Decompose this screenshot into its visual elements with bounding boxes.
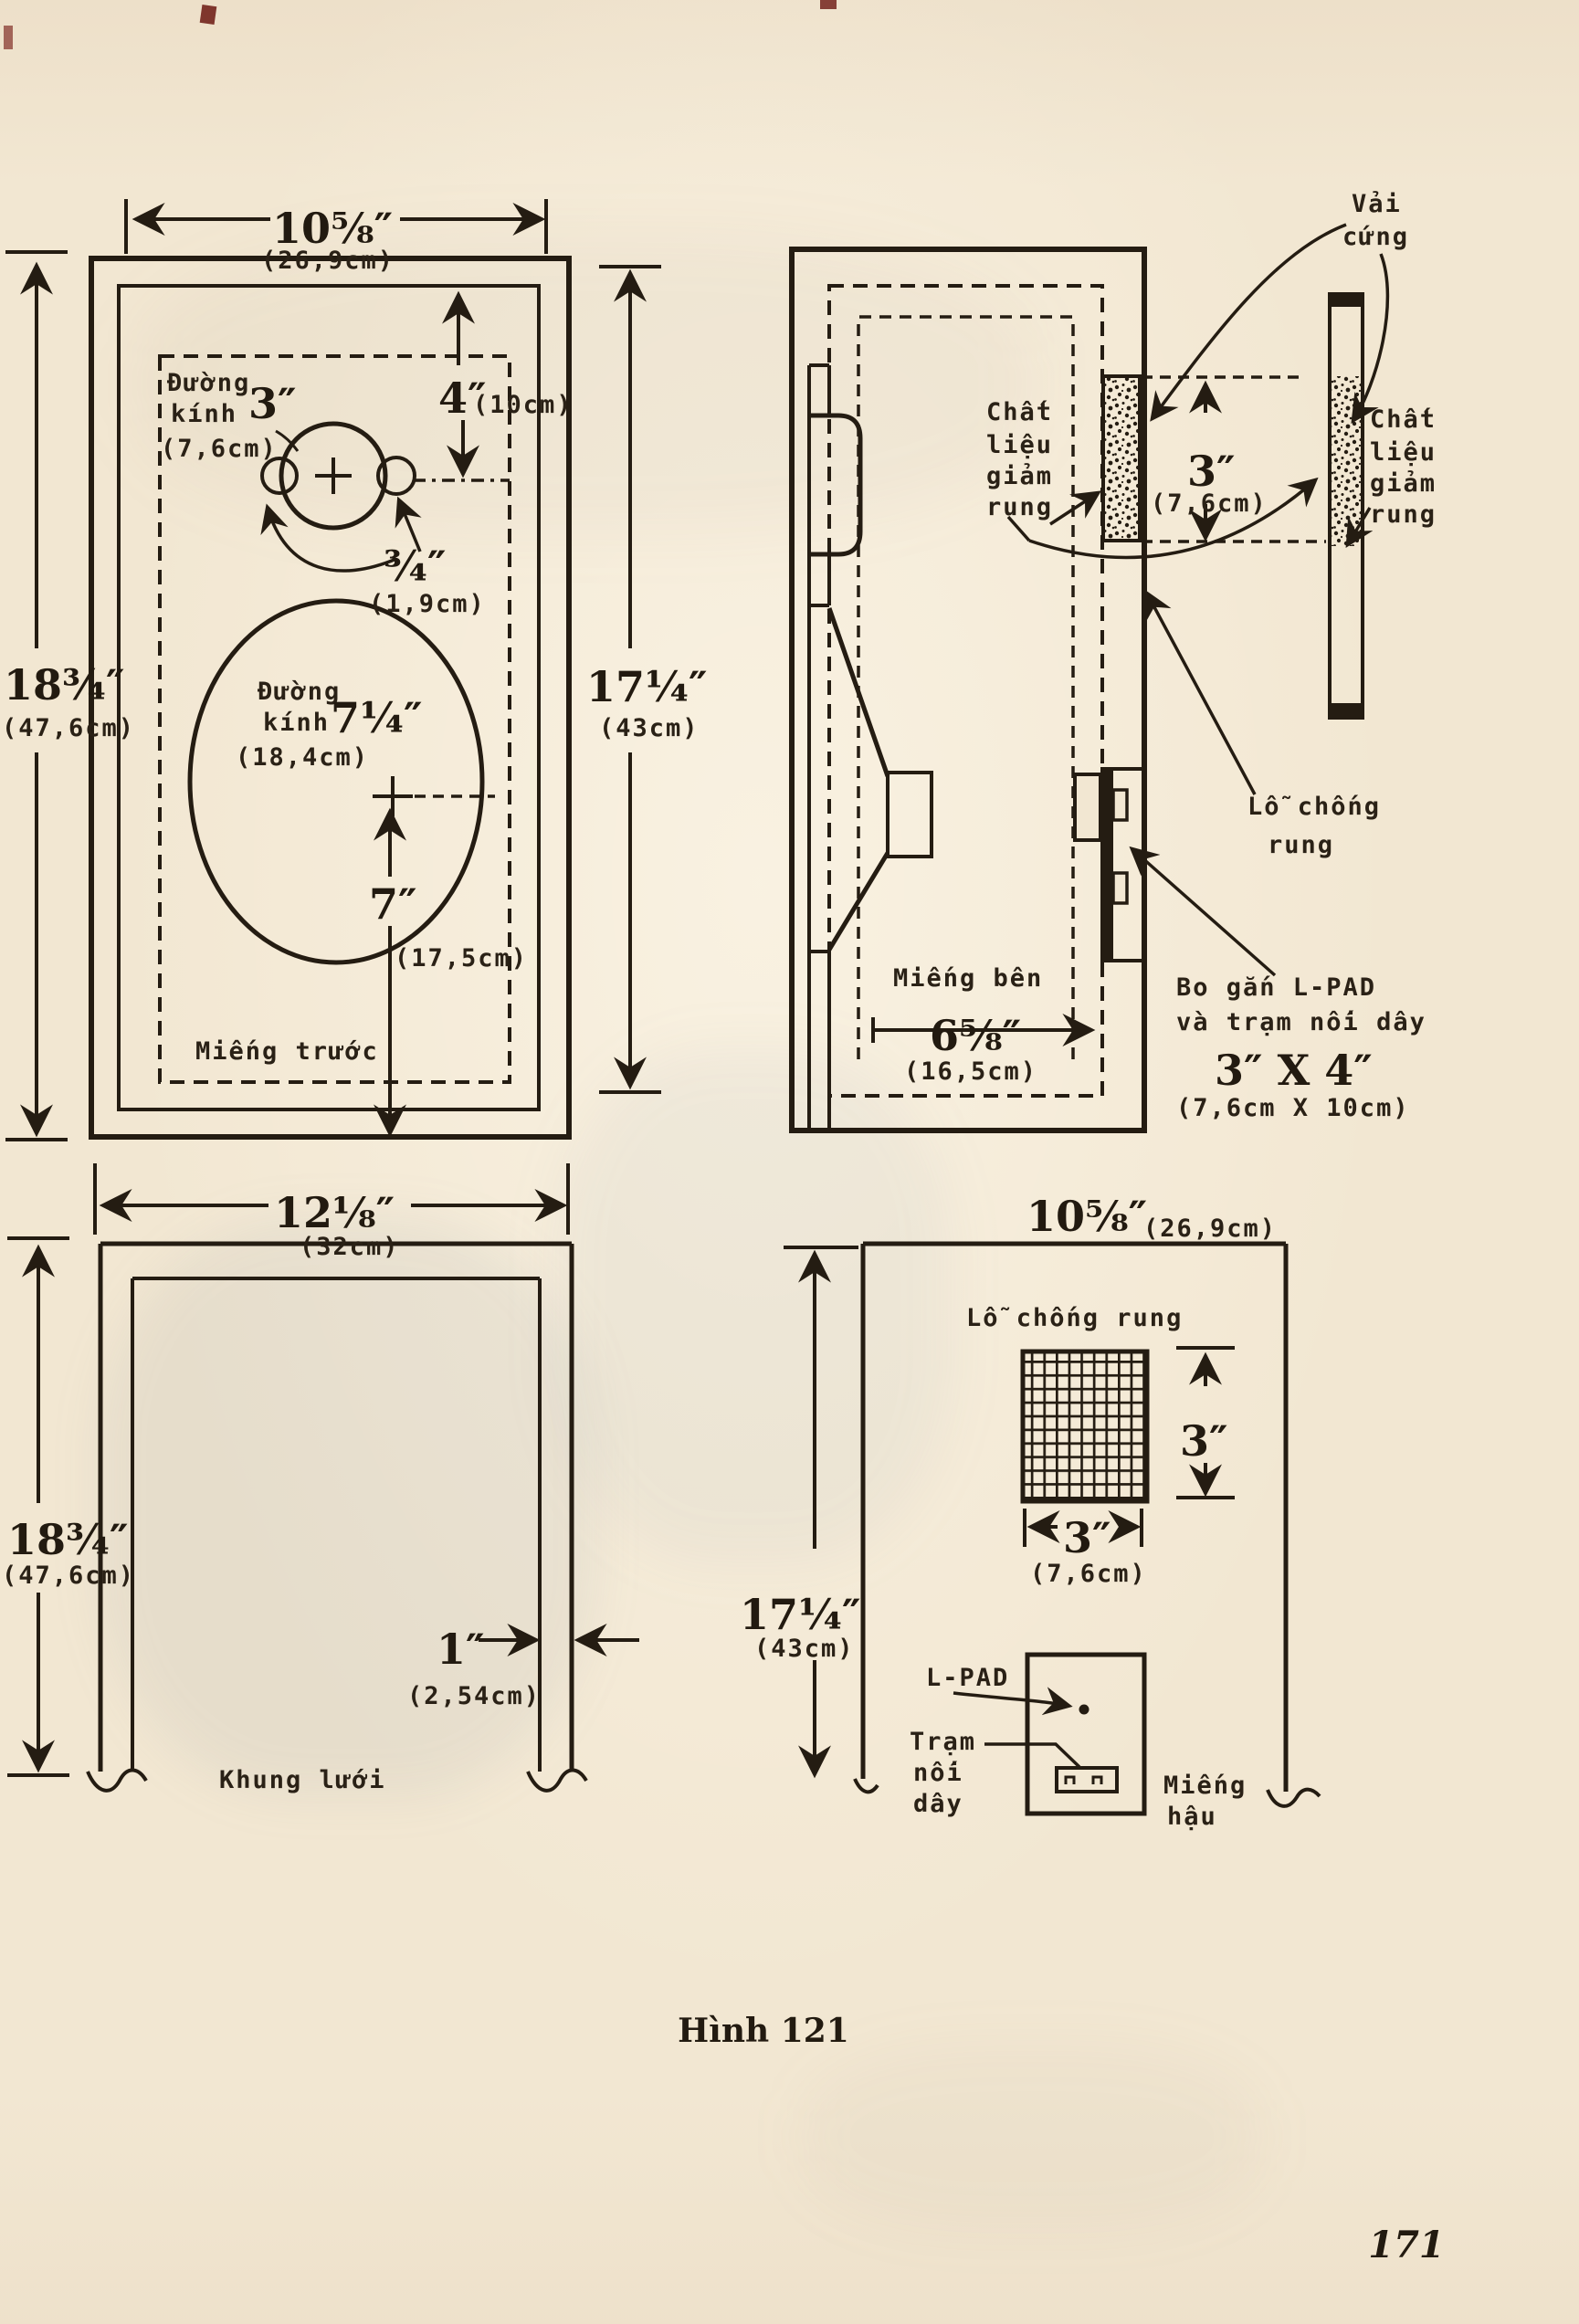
tweeter-dia-inches: 3″	[248, 379, 297, 428]
terminal-word3: dây	[913, 1790, 963, 1818]
terminal-contacts	[1066, 1777, 1101, 1784]
back-break-right	[1268, 1790, 1320, 1806]
lpad-board	[1100, 769, 1113, 961]
damping-r-word2: liệu	[1370, 438, 1437, 467]
thickness-cm: (7,6cm)	[1151, 489, 1268, 518]
tweeter-dia-word2: kính	[171, 400, 237, 428]
lpad-panel-outline	[1027, 1655, 1144, 1814]
damping-detail-labels: Vải cứng Chất liệu giảm rung 3″ (7,6cm)	[1151, 190, 1437, 529]
thickness-inches: 3″	[1187, 447, 1236, 496]
vibration-hole-pointer	[1147, 594, 1255, 794]
offset-arrow-left	[268, 508, 396, 571]
hole-width-inches: 3″	[1063, 1513, 1111, 1562]
tweeter-back-profile	[809, 415, 860, 554]
side-panel-inner-dashed	[858, 317, 1073, 1059]
depth-cm: (16,5cm)	[904, 1057, 1037, 1086]
tweeter-dia-word1: Đường	[167, 369, 250, 397]
tweeter-dia-cm: (7,6cm)	[161, 435, 278, 463]
terminal-station-side	[1075, 774, 1100, 840]
damping-strip-in-box	[1103, 376, 1140, 541]
back-name-word2: hậu	[1167, 1803, 1217, 1831]
side-panel-name: Miếng bên	[893, 964, 1043, 993]
back-height-inches: 17¼″	[740, 1590, 861, 1639]
strip-top-cap	[1330, 294, 1363, 307]
back-height-cm: (43cm)	[754, 1635, 855, 1663]
damping-word2: liệu	[986, 431, 1053, 459]
bar-cm: (2,54cm)	[407, 1682, 541, 1710]
front-height-inches: 18¾″	[4, 660, 125, 710]
cloth-word2: cứng	[1342, 223, 1409, 251]
lpad-note-pointer	[1132, 849, 1275, 975]
grille-break-right	[528, 1770, 586, 1790]
woofer-bottom-cm: (17,5cm)	[395, 944, 528, 973]
cutout-height-cm: (43cm)	[599, 714, 700, 742]
woofer-dia-word2: kính	[263, 709, 330, 737]
front-height-cm: (47,6cm)	[2, 714, 135, 742]
tweeter-offset-inches: ¾″	[384, 542, 447, 591]
grille-height-inches: 18¾″	[7, 1515, 129, 1564]
back-name-word1: Miếng	[1163, 1772, 1247, 1800]
lpad-shaft-dot	[1079, 1705, 1090, 1715]
lpad-note-size: 3″ X 4″	[1215, 1046, 1373, 1095]
vibration-hole-word2: rung	[1268, 831, 1334, 859]
terminal-word2: nối	[913, 1759, 963, 1787]
figure-caption: Hình 121	[678, 2012, 849, 2050]
grille-width-inches: 12⅛″	[274, 1188, 395, 1237]
vibration-hole-mesh	[1023, 1351, 1147, 1501]
strip-bottom-cap	[1330, 703, 1363, 718]
vibration-hole-word1: Lỗ chống	[1247, 793, 1381, 821]
damping-word4: rung	[986, 493, 1053, 521]
page-number: 171	[1368, 2224, 1445, 2266]
woofer-dia-inches: 7¼″	[331, 693, 423, 742]
damping-word3: giảm	[986, 462, 1053, 490]
tweeter-offset-cm: (1,9cm)	[369, 590, 486, 618]
strip-stipple	[1332, 376, 1361, 546]
lpad-label: L-PAD	[926, 1664, 1009, 1692]
depth-inches: 6⅝″	[930, 1011, 1021, 1060]
damping-word1: Chất	[986, 398, 1053, 426]
grille-width-cm: (32cm)	[300, 1233, 400, 1261]
damping-r-word4: rung	[1370, 500, 1437, 529]
front-width-inches: 10⅝″	[272, 204, 393, 253]
lpad-note-size-cm: (7,6cm X 10cm)	[1176, 1094, 1410, 1122]
lpad-note-line1: Bo gắn L-PAD	[1176, 973, 1376, 1002]
front-panel-name: Miếng trước	[195, 1037, 379, 1066]
woofer-ellipse	[190, 601, 482, 962]
grille-break-left	[88, 1770, 146, 1790]
woofer-bottom-inches: 7″	[369, 879, 417, 929]
hole-height-inches: 3″	[1180, 1416, 1228, 1466]
back-break-left	[855, 1779, 878, 1792]
woofer-center-cross	[373, 776, 413, 816]
damping-r-word1: Chất	[1370, 405, 1437, 434]
terminal-word1: Trạm	[910, 1728, 976, 1756]
back-hole-label: Lỗ chống rung	[966, 1304, 1183, 1332]
front-width-cm: (26,9cm)	[261, 247, 395, 275]
tweeter-center-cross	[315, 457, 352, 494]
cloth-word1: Vải	[1352, 190, 1402, 218]
grille-height-cm: (47,6cm)	[2, 1562, 135, 1590]
woofer-dia-word1: Đường	[258, 678, 341, 706]
lpad-pointer	[953, 1693, 1068, 1706]
cloth-arrow-left	[1153, 225, 1346, 418]
terminal-pointer	[984, 1744, 1079, 1767]
figure-121-drawing: 10⅝″ (26,9cm) 18¾″ (47,6cm) 17¼″ (43cm) …	[0, 0, 1579, 2324]
damping-r-word3: giảm	[1370, 469, 1437, 498]
bar-inches: 1″	[437, 1625, 485, 1674]
tweeter-top-cm: (10cm)	[473, 391, 574, 419]
back-width-inches: 10⅝″	[1026, 1192, 1147, 1241]
grille-name: Khung lưới	[219, 1766, 386, 1794]
side-panel-outer-outline	[792, 249, 1144, 1130]
damping-short-arrow	[1050, 493, 1098, 524]
lpad-note-line2: và trạm nối dây	[1176, 1008, 1426, 1036]
back-width-cm: (26,9cm)	[1143, 1215, 1277, 1243]
woofer-cone-profile	[829, 608, 888, 950]
lpad-board-tab	[1113, 873, 1127, 903]
front-panel-labels: 10⅝″ (26,9cm) 18¾″ (47,6cm) 17¼″ (43cm) …	[2, 204, 708, 1066]
back-panel-labels: 10⅝″ (26,9cm) 17¼″ (43cm) Lỗ chống rung …	[740, 1192, 1277, 1831]
lpad-board-tab	[1113, 790, 1127, 820]
hole-width-cm: (7,6cm)	[1030, 1560, 1147, 1588]
baffle-steps	[809, 365, 829, 1128]
woofer-dia-cm: (18,4cm)	[236, 743, 369, 772]
woofer-magnet	[888, 773, 932, 857]
cutout-height-inches: 17¼″	[586, 662, 708, 711]
